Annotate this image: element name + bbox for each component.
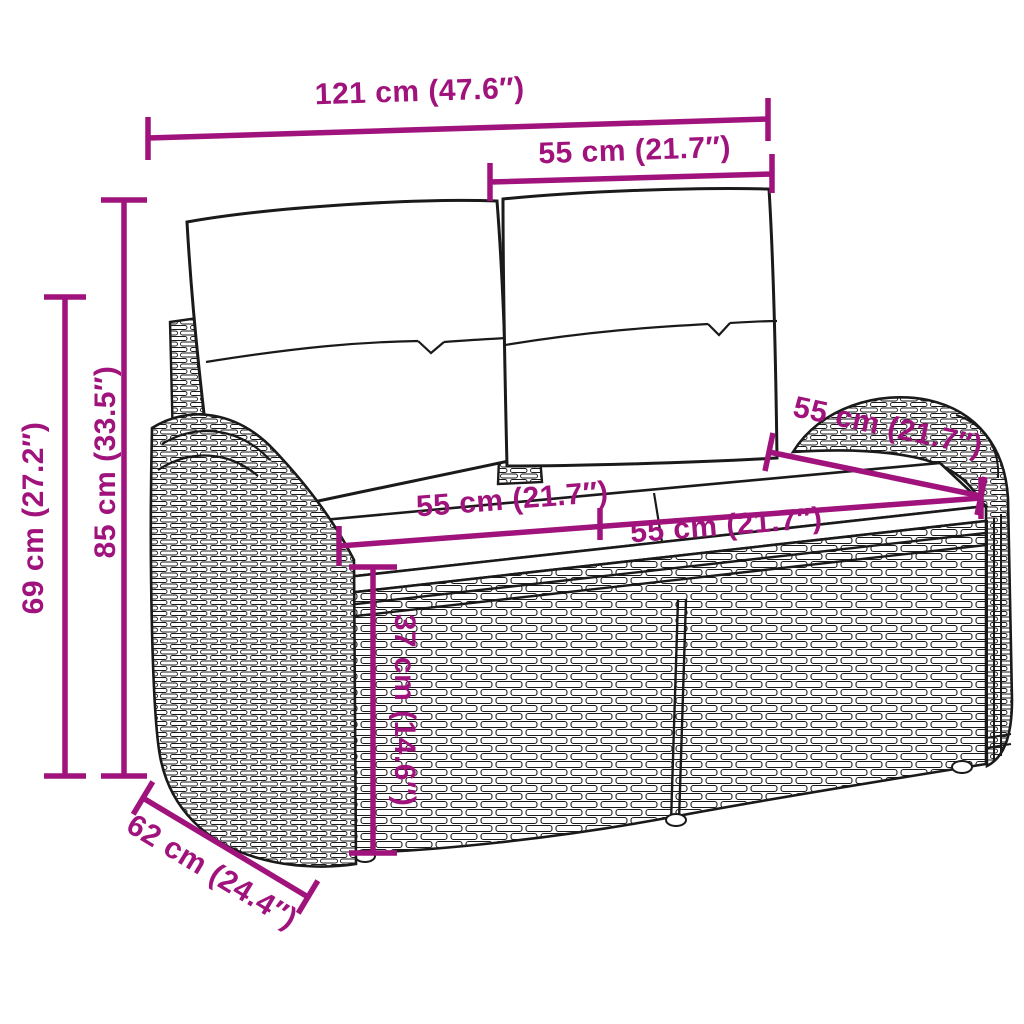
- dimension-back-width-label: 55 cm (21.7″): [538, 131, 732, 171]
- foot-center: [666, 814, 686, 826]
- back-cushion-right-shape: [503, 188, 777, 466]
- dimension-total-width-label: 121 cm (47.6″): [314, 72, 525, 112]
- back-cushion-right: [503, 188, 777, 466]
- dimension-side-height: 69 cm (27.2″): [17, 297, 86, 776]
- dimension-side-height-label: 69 cm (27.2″): [17, 422, 50, 615]
- foot-right: [952, 761, 972, 773]
- dimension-seat-height-label: 37 cm (14.6″): [388, 614, 421, 807]
- dimension-total-height: 85 cm (33.5″): [89, 200, 147, 776]
- dimension-total-height-label: 85 cm (33.5″): [89, 366, 122, 559]
- diagram-canvas: 121 cm (47.6″) 55 cm (21.7″) 85 cm (33.5…: [0, 0, 1024, 1024]
- dimension-side-height-line: [44, 297, 86, 776]
- product-dimension-diagram: 121 cm (47.6″) 55 cm (21.7″) 85 cm (33.5…: [0, 0, 1024, 1024]
